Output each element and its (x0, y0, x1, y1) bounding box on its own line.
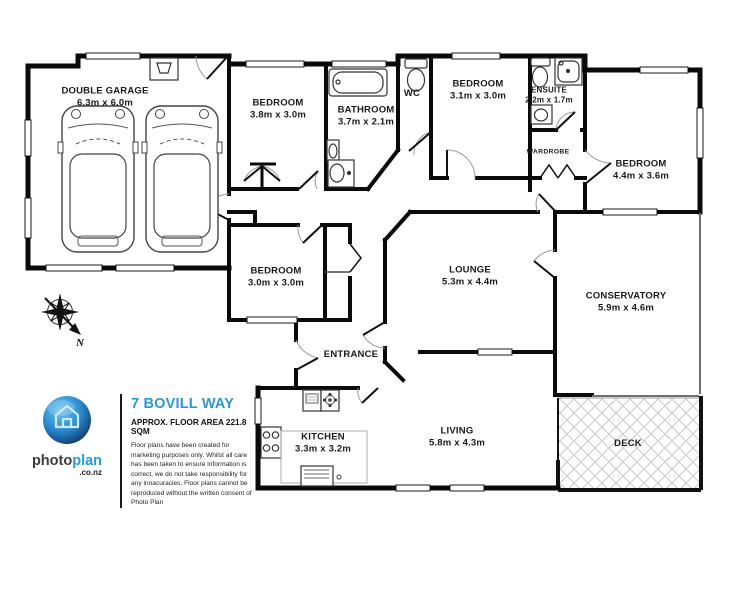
laundry-tub-icon (150, 58, 178, 80)
room-label-wc: WC (404, 88, 420, 100)
room-label-bedroom-1: BEDROOM3.8m x 3.0m (250, 98, 306, 123)
compass-rose-icon: N (41, 293, 85, 349)
ensuite-toilet-icon (531, 58, 550, 87)
room-label-lounge: LOUNGE5.3m x 4.4m (442, 265, 498, 290)
shower-icon (555, 58, 582, 85)
room-label-bedroom-3: BEDROOM4.4m x 3.6m (613, 159, 669, 184)
room-label-entrance: ENTRANCE (324, 349, 378, 361)
room-label-ensuite: ENSUITE2.2m x 1.7m (525, 86, 573, 107)
photoplan-domain: .co.nz (28, 468, 106, 477)
branding-block: photoplan .co.nz 7 BOVILL WAY APPROX. FL… (28, 394, 259, 508)
dishwasher-icon (303, 390, 321, 411)
car-icon (58, 106, 138, 252)
disclaimer-text: Floor plans have been created for market… (131, 441, 259, 508)
floor-plan-page: N DOUBLE GARAGE6.3m x 6.0m BEDROOM3.8m x… (0, 0, 749, 595)
room-label-kitchen: KITCHEN3.3m x 3.2m (295, 432, 351, 457)
stove-icon (261, 427, 281, 458)
ensuite-sink-icon (531, 105, 552, 124)
photoplan-logo-icon (41, 394, 93, 446)
bathroom-vanity-icon (327, 140, 339, 162)
car-icon (142, 106, 222, 252)
room-label-bathroom: BATHROOM3.7m x 2.1m (338, 105, 395, 130)
property-address: 7 BOVILL WAY (131, 396, 259, 412)
photoplan-wordmark: photoplan (28, 453, 106, 469)
hob-icon (321, 390, 339, 411)
floor-area-text: APPROX. FLOOR AREA 221.8 SQM (131, 418, 259, 436)
bathtub-icon (329, 69, 387, 96)
room-label-double-garage: DOUBLE GARAGE6.3m x 6.0m (61, 86, 148, 111)
room-label-conservatory: CONSERVATORY5.9m x 4.6m (586, 291, 667, 316)
bathroom-sink-icon (328, 160, 354, 187)
room-label-wardrobe: WARDROBE (527, 149, 570, 158)
room-label-bedroom-4: BEDROOM3.0m x 3.0m (248, 266, 304, 291)
photoplan-logo: photoplan .co.nz (28, 394, 106, 508)
room-label-bedroom-2: BEDROOM3.1m x 3.0m (450, 79, 506, 104)
room-label-deck: DECK (614, 438, 642, 450)
room-label-living: LIVING5.8m x 4.3m (429, 426, 485, 451)
svg-text:N: N (75, 337, 85, 349)
wc-toilet-icon (405, 59, 427, 91)
